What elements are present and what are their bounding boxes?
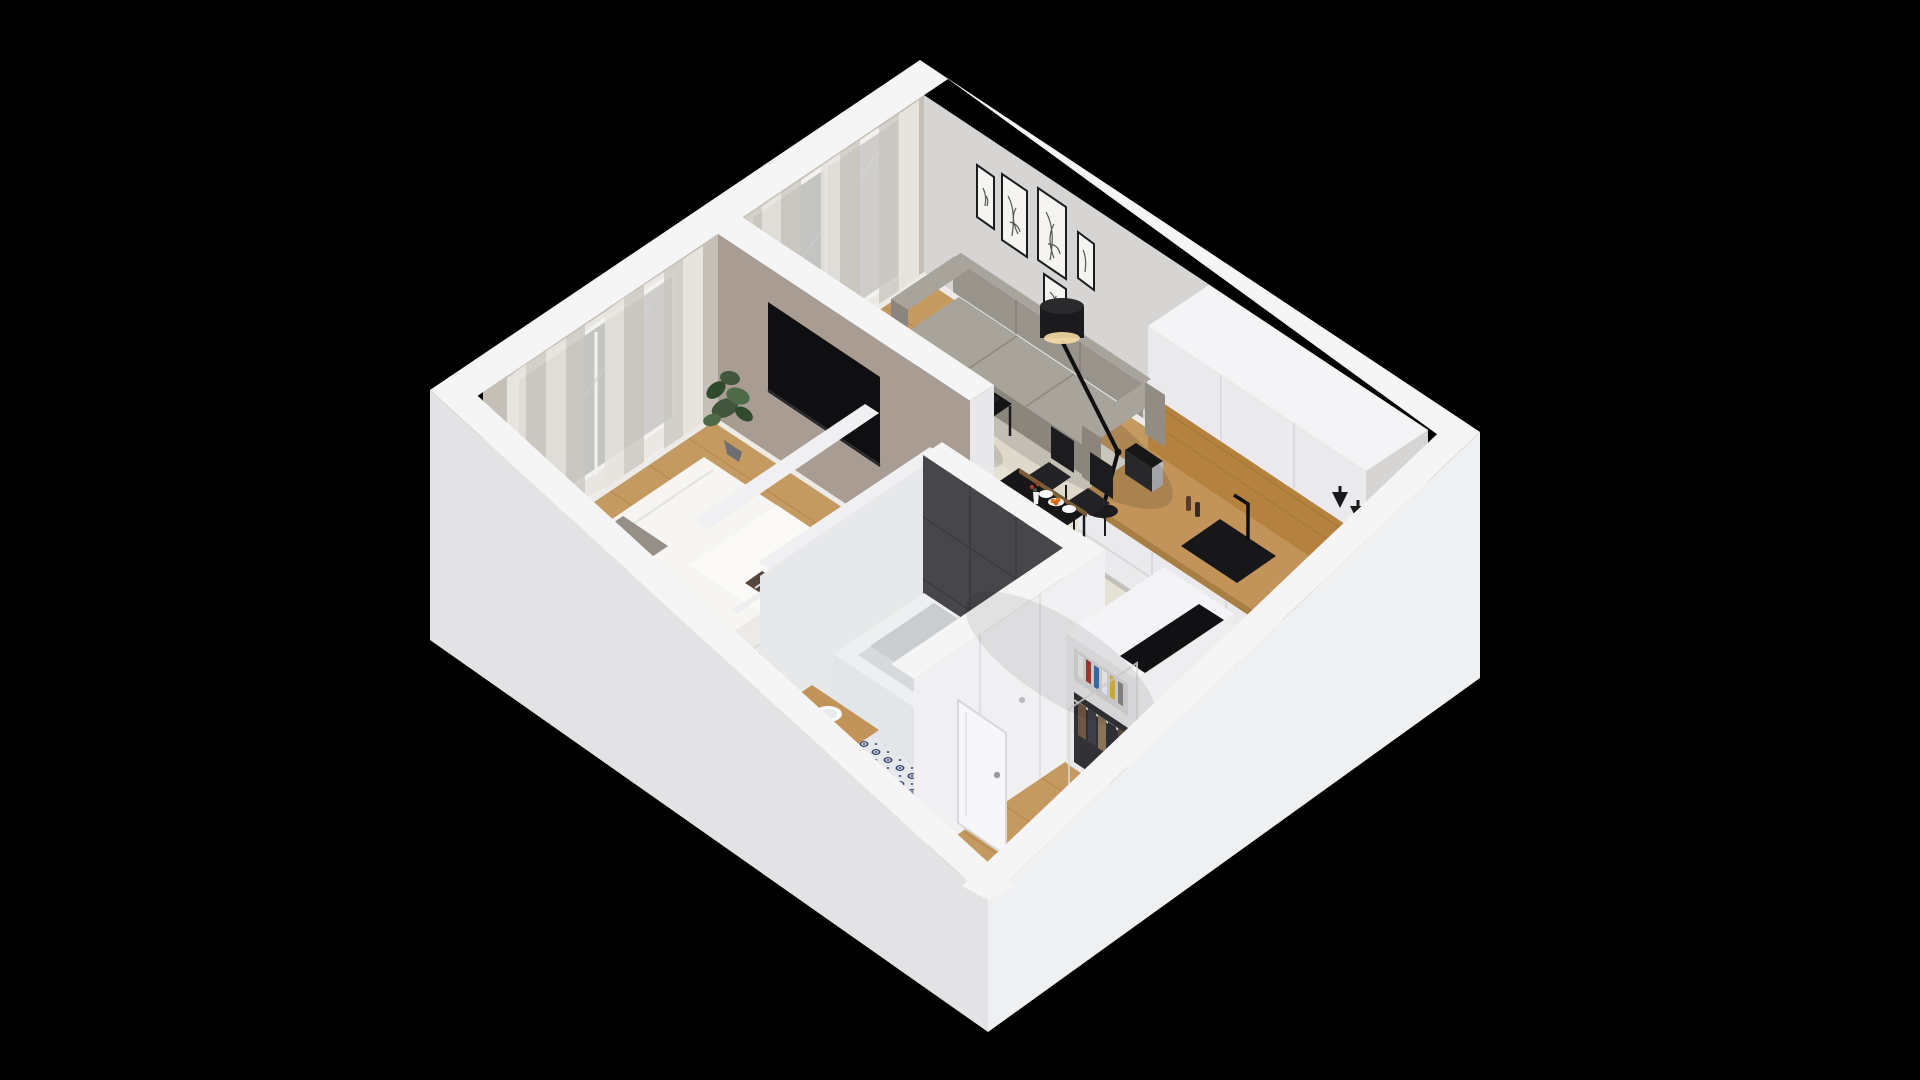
apartment-isometric-render <box>0 0 1920 1080</box>
toilet-paper-holder <box>1019 697 1025 703</box>
lamp-glow <box>1044 332 1080 344</box>
door-handle <box>994 772 1000 778</box>
flower-vase <box>1033 492 1039 504</box>
